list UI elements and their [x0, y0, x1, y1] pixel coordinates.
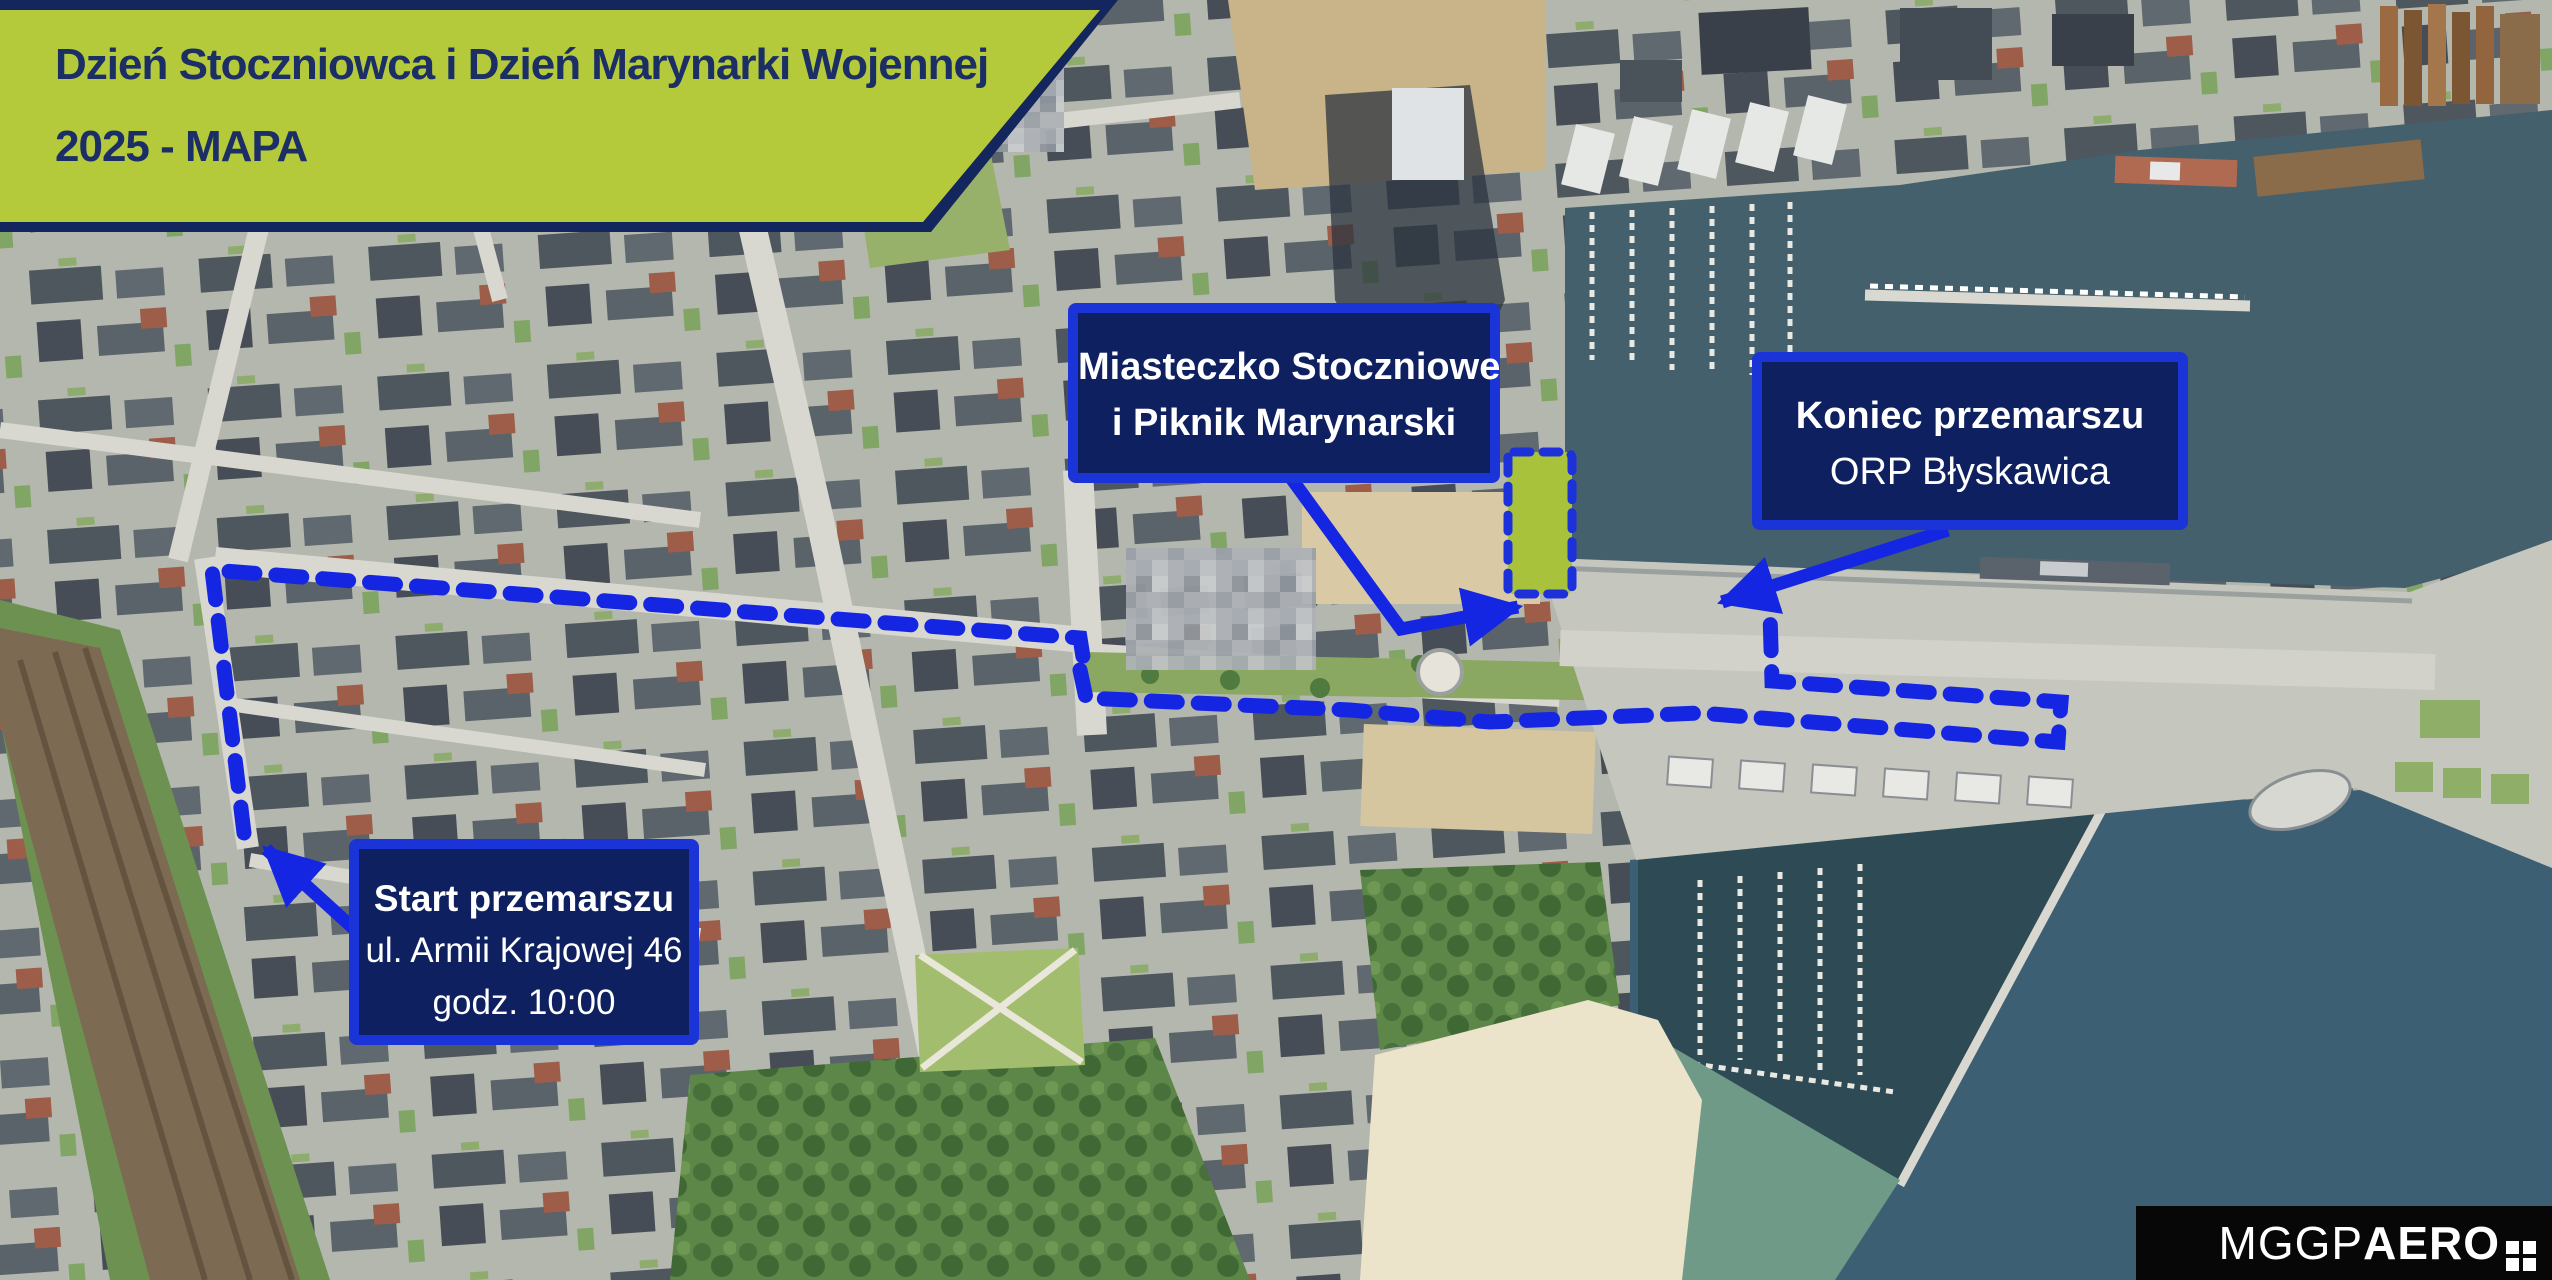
koniec-subtitle: ORP Błyskawica [1762, 444, 2178, 500]
banner-title-line1: Dzień Stoczniowca i Dzień Marynarki Woje… [55, 40, 988, 90]
monument-circle [1418, 650, 1462, 694]
logo-squares-icon [2506, 1241, 2536, 1271]
miasteczko-line1: Miasteczko Stoczniowe [1078, 339, 1490, 395]
miasteczko-line2: i Piknik Marynarski [1078, 395, 1490, 451]
start-title: Start przemarszu [359, 873, 689, 925]
picnic-zone-rectangle [1508, 452, 1572, 594]
start-address: ul. Armii Krajowej 46 [359, 925, 689, 977]
koniec-title: Koniec przemarszu [1762, 388, 2178, 444]
mggp-aero-logo: MGGPAERO [2136, 1206, 2552, 1280]
blurred-building-center [1126, 548, 1316, 670]
logo-brand-bold: AERO [2363, 1216, 2500, 1270]
start-time: godz. 10:00 [359, 977, 689, 1029]
title-banner: Dzień Stoczniowca i Dzień Marynarki Woje… [0, 0, 1120, 232]
label-koniec-przemarszu: Koniec przemarszu ORP Błyskawica [1752, 352, 2188, 530]
label-miasteczko-stoczniowe: Miasteczko Stoczniowe i Piknik Marynarsk… [1068, 303, 1500, 483]
label-start-przemarszu: Start przemarszu ul. Armii Krajowej 46 g… [349, 839, 699, 1045]
banner-title-line2: 2025 - MAPA [55, 122, 307, 172]
event-route-map: Dzień Stoczniowca i Dzień Marynarki Woje… [0, 0, 2552, 1280]
logo-brand-regular: MGGP [2219, 1216, 2364, 1270]
